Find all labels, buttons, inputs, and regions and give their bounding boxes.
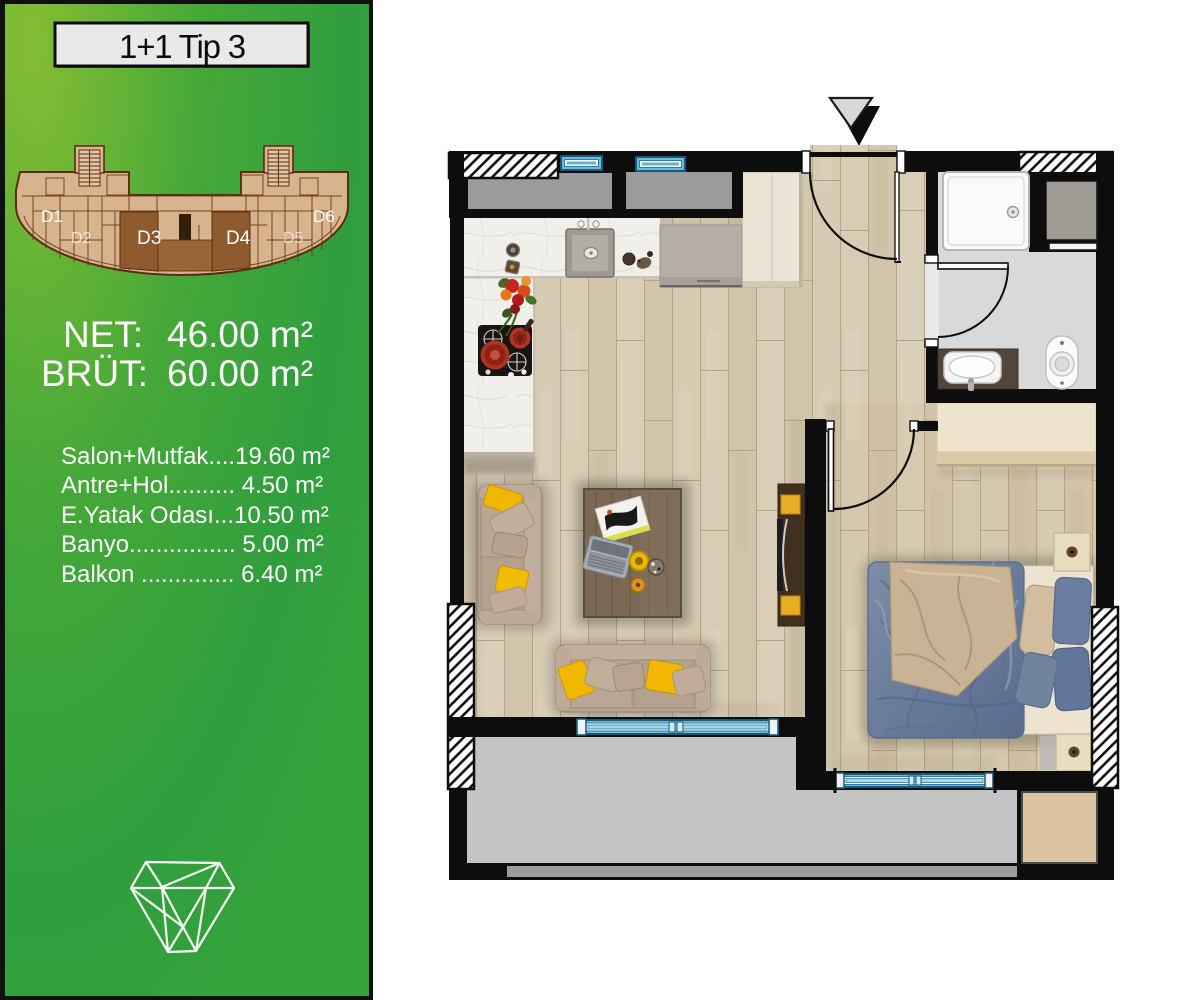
svg-text:D5: D5 <box>283 230 304 247</box>
svg-text:Salon+Mutfak....19.60 m²: Salon+Mutfak....19.60 m² <box>61 443 330 470</box>
svg-text:Antre+Hol.......... 4.50 m²: Antre+Hol.......... 4.50 m² <box>61 472 323 499</box>
svg-text:Banyo................ 5.00 m²: Banyo................ 5.00 m² <box>61 531 324 558</box>
svg-text:Balkon .............. 6.40 m²: Balkon .............. 6.40 m² <box>61 561 322 588</box>
svg-text:46.00 m²: 46.00 m² <box>167 314 313 355</box>
svg-text:1+1 Tip 3: 1+1 Tip 3 <box>119 28 245 65</box>
svg-text:NET:: NET: <box>63 314 143 355</box>
svg-text:D4: D4 <box>226 228 251 249</box>
svg-text:BRÜT:: BRÜT: <box>41 353 148 394</box>
svg-text:D3: D3 <box>137 228 161 249</box>
svg-text:60.00 m²: 60.00 m² <box>167 353 313 394</box>
svg-text:D1: D1 <box>41 207 63 226</box>
svg-text:E.Yatak Odası...10.50 m²: E.Yatak Odası...10.50 m² <box>61 502 329 529</box>
svg-text:D2: D2 <box>71 230 92 247</box>
svg-text:D6: D6 <box>313 207 335 226</box>
